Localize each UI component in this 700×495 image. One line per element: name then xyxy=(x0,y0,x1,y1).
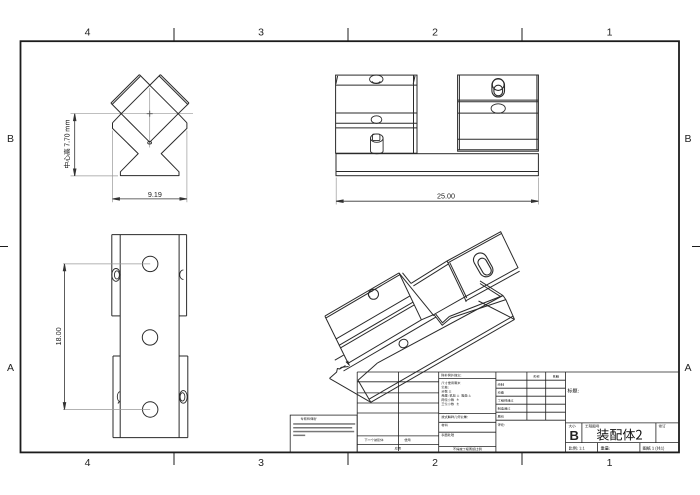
svg-text:25.00: 25.00 xyxy=(437,191,455,200)
svg-text:4: 4 xyxy=(85,457,91,469)
svg-text:3: 3 xyxy=(258,27,264,39)
svg-text:1: 1 xyxy=(607,27,613,39)
svg-text:A: A xyxy=(684,362,691,374)
svg-text:9.19: 9.19 xyxy=(148,190,162,199)
svg-text:4: 4 xyxy=(85,27,91,39)
svg-text:3: 3 xyxy=(258,457,264,469)
svg-text:2: 2 xyxy=(432,27,438,39)
svg-text:B: B xyxy=(570,428,579,443)
svg-text:1: 1 xyxy=(607,457,613,469)
svg-text:B: B xyxy=(684,133,691,145)
svg-text:2: 2 xyxy=(432,457,438,469)
svg-text:A: A xyxy=(7,362,14,374)
svg-text:B: B xyxy=(7,133,14,145)
svg-text:18.00: 18.00 xyxy=(54,327,63,345)
